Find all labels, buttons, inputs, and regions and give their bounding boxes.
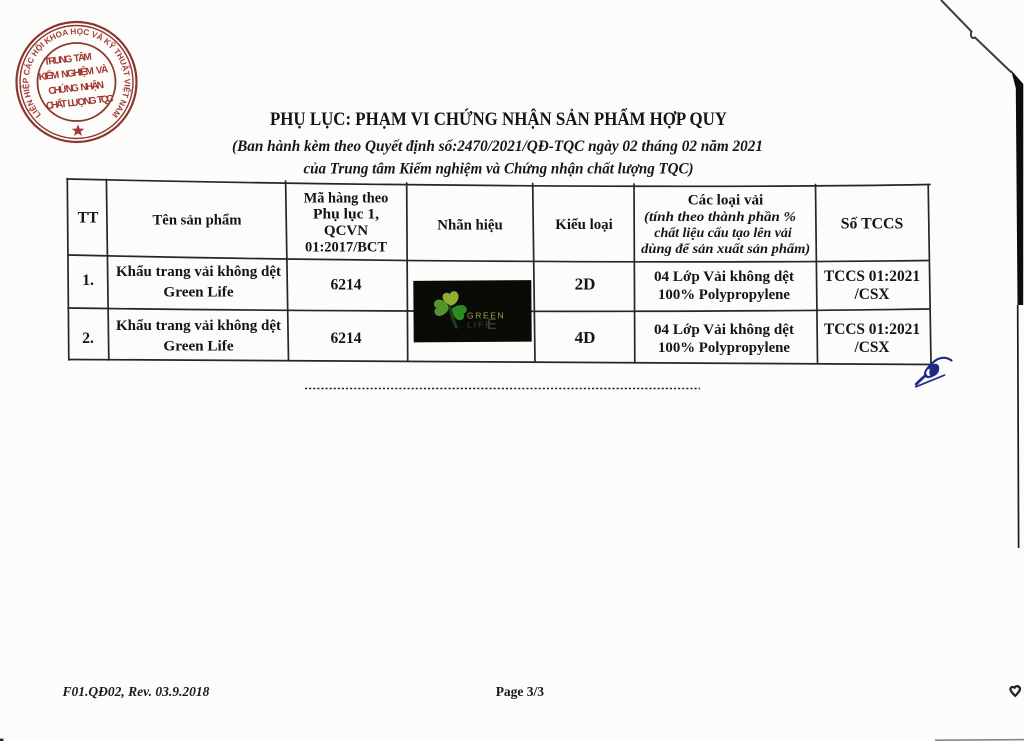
svg-text:1.: 1. (82, 272, 94, 289)
svg-text:Phụ lục 1,: Phụ lục 1, (313, 207, 379, 223)
svg-text:Khẩu trang vải không dệt: Khẩu trang vải không dệt (116, 263, 281, 280)
svg-text:Các loại vải: Các loại vải (688, 193, 764, 209)
svg-text:Tên sản phẩm: Tên sản phẩm (153, 213, 242, 229)
svg-text:04 Lớp Vải không dệt: 04 Lớp Vải không dệt (654, 268, 794, 285)
svg-text:chất liệu cấu tạo lên vải: chất liệu cấu tạo lên vải (654, 225, 792, 240)
svg-text:dùng để sản xuất sản phẩm): dùng để sản xuất sản phẩm) (641, 241, 810, 257)
svg-text:100% Polypropylene: 100% Polypropylene (658, 339, 790, 356)
svg-text:4D: 4D (575, 328, 596, 347)
svg-text:/CSX: /CSX (853, 286, 889, 303)
svg-text:PHỤ LỤC: PHẠM VI CHỨNG NHẬN SẢ: PHỤ LỤC: PHẠM VI CHỨNG NHẬN SẢN PHẨM HỢP… (270, 108, 727, 130)
svg-text:Kiểu loại: Kiểu loại (555, 217, 613, 233)
svg-text:Số TCCS: Số TCCS (841, 215, 904, 232)
svg-text:2D: 2D (575, 275, 596, 294)
svg-text:04 Lớp Vải không dệt: 04 Lớp Vải không dệt (654, 321, 794, 338)
svg-text:F01.QĐ02, Rev. 03.9.2018: F01.QĐ02, Rev. 03.9.2018 (62, 684, 210, 699)
svg-text:(Ban hành kèm theo Quyết định: (Ban hành kèm theo Quyết định số:2470/20… (232, 138, 763, 155)
svg-text:TCCS 01:2021: TCCS 01:2021 (824, 321, 920, 338)
svg-text:01:2017/BCT: 01:2017/BCT (305, 239, 387, 255)
svg-text:E: E (487, 317, 497, 333)
svg-text:Green Life: Green Life (163, 284, 233, 301)
svg-text:QCVN: QCVN (324, 223, 368, 239)
svg-text:Mã hàng theo: Mã hàng theo (304, 190, 389, 206)
svg-text:2.: 2. (82, 330, 94, 347)
svg-text:của Trung tâm Kiểm nghiệm và C: của Trung tâm Kiểm nghiệm và Chứng nhận … (304, 160, 694, 177)
svg-text:/CSX: /CSX (853, 339, 889, 356)
svg-text:TCCS 01:2021: TCCS 01:2021 (824, 268, 920, 285)
svg-text:Green Life: Green Life (163, 338, 233, 355)
svg-text:6214: 6214 (331, 277, 362, 294)
svg-text:Nhãn hiệu: Nhãn hiệu (437, 217, 503, 233)
svg-text:100% Polypropylene: 100% Polypropylene (658, 286, 790, 303)
svg-text:(tính theo thành phần %: (tính theo thành phần % (644, 209, 796, 225)
svg-text:Page 3/3: Page 3/3 (496, 684, 545, 699)
svg-text:Khẩu trang vải không dệt: Khẩu trang vải không dệt (116, 317, 281, 334)
svg-text:6214: 6214 (331, 330, 362, 347)
svg-text:TT: TT (78, 210, 99, 227)
